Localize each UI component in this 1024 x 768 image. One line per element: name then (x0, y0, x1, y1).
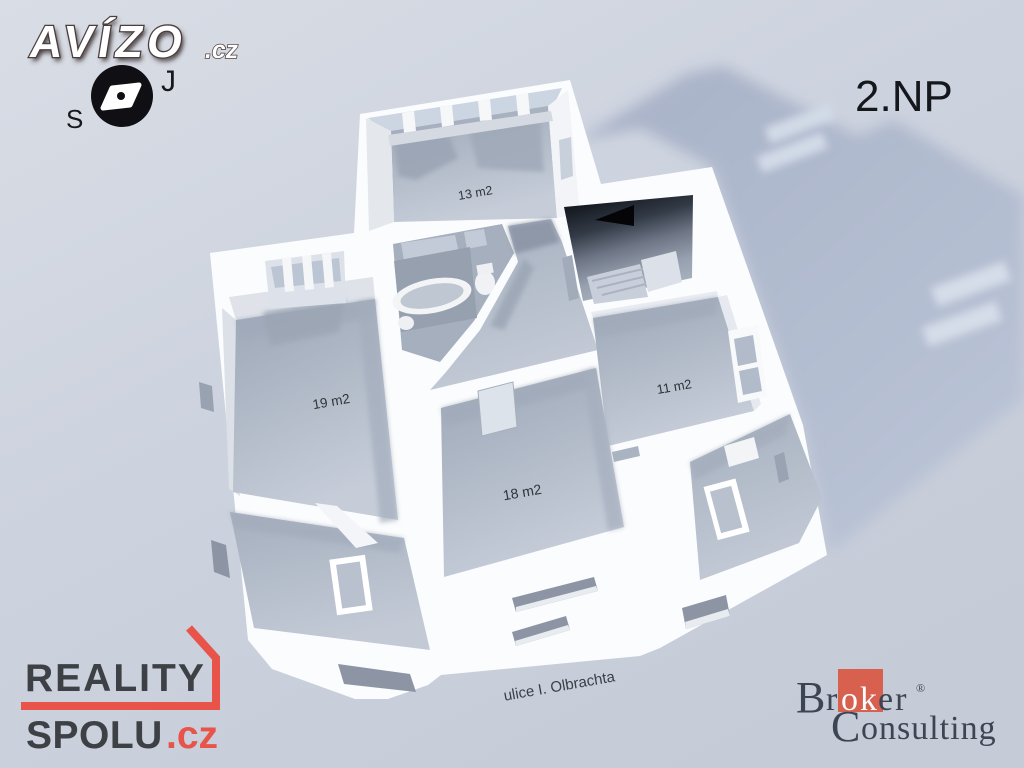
svg-text:AVÍZO: AVÍZO (26, 16, 191, 67)
svg-text:.cz: .cz (166, 714, 218, 757)
svg-text:onsulting: onsulting (861, 710, 997, 747)
svg-text:S: S (66, 104, 83, 134)
svg-text:J: J (161, 65, 176, 98)
svg-text:C: C (831, 702, 860, 751)
svg-text:REALITY: REALITY (25, 657, 206, 700)
svg-text:.cz: .cz (203, 36, 241, 64)
svg-text:B: B (796, 673, 825, 722)
svg-text:SPOLU: SPOLU (26, 714, 163, 757)
svg-text:®: ® (916, 681, 925, 695)
svg-text:2.NP: 2.NP (855, 72, 953, 121)
